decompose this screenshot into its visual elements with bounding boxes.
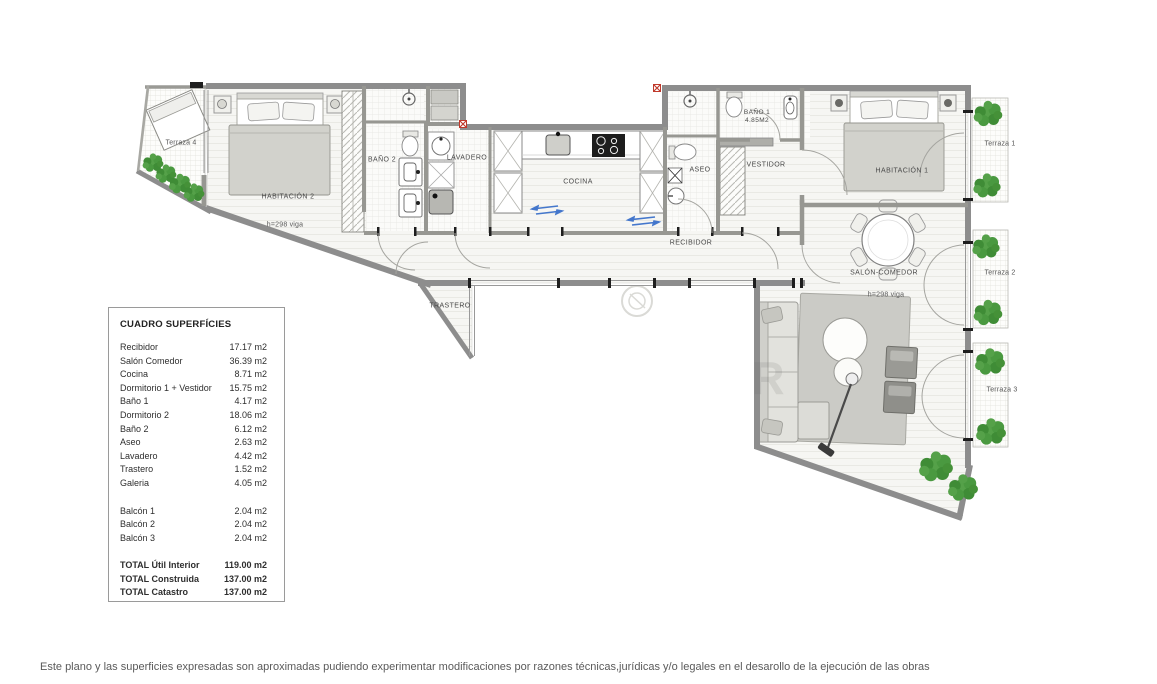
table-row-label: TOTAL Catastro: [120, 586, 188, 600]
label-habitacion1: HABITACIÓN 1: [876, 168, 929, 175]
label-bano1-name: BAÑO 1: [744, 109, 770, 116]
table-row: Baño 14.17 m2: [120, 395, 267, 409]
surface-table-balconies: Balcón 12.04 m2Balcón 22.04 m2Balcón 32.…: [120, 505, 267, 546]
table-row-value: 2.04 m2: [234, 532, 267, 546]
wardrobe-habitacion2: [342, 91, 364, 232]
label-bano1-area: 4.85M2: [745, 117, 769, 124]
table-gap: [120, 491, 267, 505]
table-row: Dormitorio 1 + Vestidor15.75 m2: [120, 382, 267, 396]
surface-table-totals: TOTAL Útil Interior119.00 m2TOTAL Constr…: [120, 559, 267, 600]
label-bano2: BAÑO 2: [368, 157, 396, 164]
table-row-label: Dormitorio 1 + Vestidor: [120, 382, 212, 396]
label-terraza2: Terraza 2: [985, 270, 1016, 277]
table-row: TOTAL Construida137.00 m2: [120, 573, 267, 587]
table-row-label: Dormitorio 2: [120, 409, 169, 423]
table-row: Lavadero4.42 m2: [120, 450, 267, 464]
table-row: Recibidor17.17 m2: [120, 341, 267, 355]
table-row-label: Salón Comedor: [120, 355, 183, 369]
table-row-label: TOTAL Construida: [120, 573, 199, 587]
table-row: Balcón 12.04 m2: [120, 505, 267, 519]
table-row-label: Baño 1: [120, 395, 149, 409]
table-row-label: TOTAL Útil Interior: [120, 559, 200, 573]
table-row-label: Balcón 2: [120, 518, 155, 532]
table-row-label: Galeria: [120, 477, 149, 491]
table-row-value: 137.00 m2: [224, 586, 267, 600]
table-row-value: 18.06 m2: [229, 409, 267, 423]
table-row-label: Lavadero: [120, 450, 158, 464]
table-row-value: 2.04 m2: [234, 518, 267, 532]
label-trastero: TRASTERO: [429, 303, 470, 310]
disclaimer-text: Este plano y las superficies expresadas …: [40, 661, 930, 673]
table-row-label: Recibidor: [120, 341, 158, 355]
table-row: Galeria4.05 m2: [120, 477, 267, 491]
table-row: Trastero1.52 m2: [120, 463, 267, 477]
label-viga-hab2: h=298 viga: [267, 222, 303, 229]
label-bano1: BAÑO 1 4.85M2: [744, 109, 770, 125]
table-row: Balcón 22.04 m2: [120, 518, 267, 532]
table-row-label: Aseo: [120, 436, 141, 450]
table-row-value: 1.52 m2: [234, 463, 267, 477]
table-row-value: 4.17 m2: [234, 395, 267, 409]
table-gap: [120, 545, 267, 559]
table-row: Salón Comedor36.39 m2: [120, 355, 267, 369]
label-lavadero: LAVADERO: [447, 155, 487, 162]
bed-habitacion1: [831, 91, 956, 191]
table-row: TOTAL Catastro137.00 m2: [120, 586, 267, 600]
table-row-value: 2.63 m2: [234, 436, 267, 450]
table-row-value: 119.00 m2: [224, 559, 267, 573]
table-row-label: Trastero: [120, 463, 153, 477]
table-row-value: 2.04 m2: [234, 505, 267, 519]
label-recibidor: RECIBIDOR: [670, 240, 713, 247]
table-row-value: 6.12 m2: [234, 423, 267, 437]
label-salon-comedor: SALÓN-COMEDOR: [850, 270, 918, 277]
watermark-letter: R: [751, 351, 784, 405]
table-row-value: 4.42 m2: [234, 450, 267, 464]
table-row-value: 15.75 m2: [229, 382, 267, 396]
laundry-fixtures: [428, 132, 454, 214]
surface-table: CUADRO SUPERFÍCIES Recibidor17.17 m2Saló…: [108, 307, 285, 602]
table-row-label: Balcón 1: [120, 505, 155, 519]
table-row-value: 17.17 m2: [229, 341, 267, 355]
surface-table-title: CUADRO SUPERFÍCIES: [120, 319, 267, 330]
label-viga-salon: h=298 viga: [868, 292, 904, 299]
watermark-logo: [622, 286, 652, 316]
red-markers: [460, 85, 661, 128]
table-row: Cocina8.71 m2: [120, 368, 267, 382]
table-row: Baño 26.12 m2: [120, 423, 267, 437]
floor-plan-page: Terraza 4 HABITACIÓN 2 h=298 viga BAÑO 2…: [0, 0, 1157, 684]
table-row-value: 36.39 m2: [229, 355, 267, 369]
label-terraza4: Terraza 4: [166, 140, 197, 147]
table-row-label: Balcón 3: [120, 532, 155, 546]
label-cocina: COCINA: [563, 179, 593, 186]
label-vestidor: VESTIDOR: [747, 162, 786, 169]
label-terraza1: Terraza 1: [985, 141, 1016, 148]
label-terraza3: Terraza 3: [987, 387, 1018, 394]
label-aseo: ASEO: [689, 167, 710, 174]
table-row-value: 4.05 m2: [234, 477, 267, 491]
table-row: Dormitorio 218.06 m2: [120, 409, 267, 423]
table-row-value: 8.71 m2: [234, 368, 267, 382]
table-row-value: 137.00 m2: [224, 573, 267, 587]
label-habitacion2: HABITACIÓN 2: [262, 194, 315, 201]
surface-table-rooms: Recibidor17.17 m2Salón Comedor36.39 m2Co…: [120, 341, 267, 491]
table-row: TOTAL Útil Interior119.00 m2: [120, 559, 267, 573]
table-row: Aseo2.63 m2: [120, 436, 267, 450]
table-row-label: Baño 2: [120, 423, 149, 437]
table-row-label: Cocina: [120, 368, 148, 382]
table-row: Balcón 32.04 m2: [120, 532, 267, 546]
